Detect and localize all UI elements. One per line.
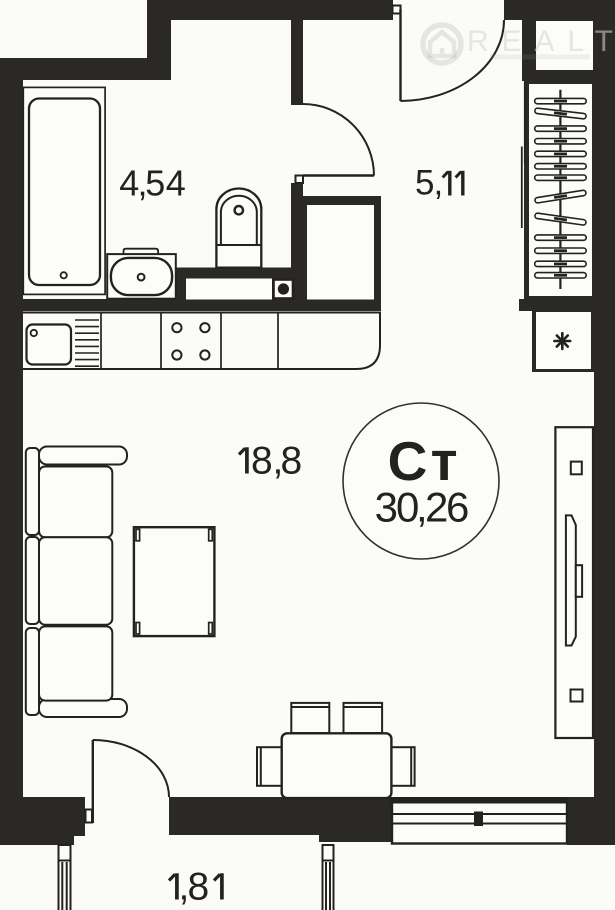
svg-text:5,: 5, xyxy=(415,164,443,203)
svg-text:4,54: 4,54 xyxy=(119,163,185,204)
svg-text:8,8: 8,8 xyxy=(251,440,302,483)
svg-text:,8: ,8 xyxy=(179,866,210,909)
svg-text:30,26: 30,26 xyxy=(375,484,470,531)
svg-text:Ст: Ст xyxy=(388,430,458,492)
